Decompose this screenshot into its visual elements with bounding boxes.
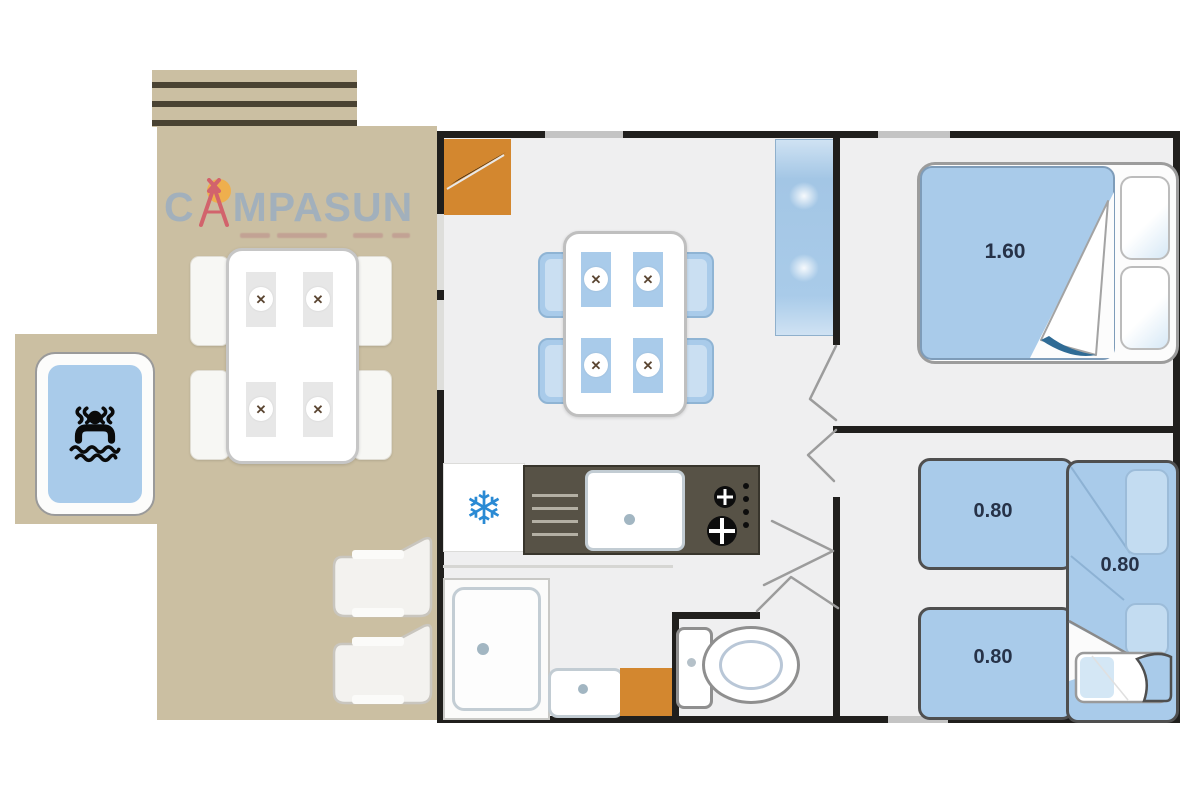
- pillow: [1120, 266, 1170, 350]
- place-setting: ✕: [303, 382, 333, 437]
- shower-tray: [452, 587, 541, 711]
- plate: ✕: [249, 287, 273, 311]
- plate: ✕: [636, 267, 660, 291]
- tagline-word: [353, 233, 383, 238]
- tagline-word: [240, 233, 270, 238]
- wardrobe-handle: [789, 254, 819, 282]
- wardrobe-handle: [789, 182, 819, 210]
- jacuzzi: [35, 352, 155, 516]
- plate: ✕: [584, 353, 608, 377]
- jacuzzi-water: [48, 365, 142, 503]
- place-setting: ✕: [581, 338, 611, 393]
- pergola-slat-line: [152, 82, 357, 88]
- single-bed-a-label: 0.80: [930, 498, 1056, 524]
- interior-wall: [833, 131, 840, 345]
- logo-letter-c: C: [164, 187, 195, 228]
- window: [878, 131, 950, 138]
- door-mat: [620, 668, 673, 716]
- cutlery-icon: ✕: [313, 293, 324, 306]
- double-bed-label: 1.60: [955, 239, 1055, 265]
- kitchen-sink: [585, 470, 685, 551]
- drainer-line: [532, 507, 578, 510]
- cutlery-icon: ✕: [313, 403, 324, 416]
- cutlery-icon: ✕: [591, 359, 602, 372]
- single-bed-c-label: 0.80: [1072, 552, 1168, 578]
- outdoor-chair: [190, 256, 230, 346]
- drainer-line: [532, 520, 578, 523]
- logo-tent-icon: [195, 178, 233, 228]
- pergola-slats: [152, 70, 357, 127]
- logo-letters-mpasun: MPASUN: [233, 187, 414, 228]
- pillow: [1120, 176, 1170, 260]
- place-setting: ✕: [581, 252, 611, 307]
- jacuzzi-icon: [62, 405, 128, 463]
- campasun-logo: C MPASUN: [164, 176, 413, 228]
- sink-drain: [624, 514, 635, 525]
- bay-mullion: [437, 290, 444, 300]
- bedroom-divider-wall: [833, 426, 1173, 433]
- place-setting: ✕: [633, 252, 663, 307]
- tagline-word: [392, 233, 410, 238]
- toilet-bowl-inner: [719, 640, 783, 690]
- plate: ✕: [584, 267, 608, 291]
- plate: ✕: [306, 397, 330, 421]
- plate: ✕: [636, 353, 660, 377]
- drainer-line: [532, 533, 578, 536]
- cutlery-icon: ✕: [643, 273, 654, 286]
- plate: ✕: [249, 397, 273, 421]
- entrance-door: [444, 139, 511, 215]
- single-bed-c: [1066, 460, 1179, 723]
- shower: [443, 578, 550, 720]
- tagline-word: [277, 233, 327, 238]
- sliding-bay-window: [437, 214, 444, 390]
- place-setting: ✕: [246, 382, 276, 437]
- plate: ✕: [306, 287, 330, 311]
- toilet-flush-button: [687, 658, 696, 667]
- cutlery-icon: ✕: [256, 403, 267, 416]
- place-setting: ✕: [633, 338, 663, 393]
- place-setting: ✕: [303, 272, 333, 327]
- single-bed-b-label: 0.80: [930, 644, 1056, 670]
- outdoor-chair: [190, 370, 230, 460]
- pergola-slat-line: [152, 101, 357, 107]
- shower-drain: [477, 643, 489, 655]
- cutlery-icon: ✕: [256, 293, 267, 306]
- wardrobe: [775, 139, 839, 336]
- drainer-line: [532, 494, 578, 497]
- window: [545, 131, 623, 138]
- bathroom-wall-line: [443, 565, 673, 568]
- place-setting: ✕: [246, 272, 276, 327]
- snowflake-icon: ❄: [465, 485, 504, 531]
- cutlery-icon: ✕: [591, 273, 602, 286]
- basin-drain: [578, 684, 588, 694]
- mobile-home-floor-plan: C MPASUN ✕ ✕ ✕ ✕: [0, 0, 1200, 800]
- fridge: ❄: [443, 463, 525, 552]
- wc-wall: [672, 612, 760, 619]
- cutlery-icon: ✕: [643, 359, 654, 372]
- interior-wall: [833, 497, 840, 723]
